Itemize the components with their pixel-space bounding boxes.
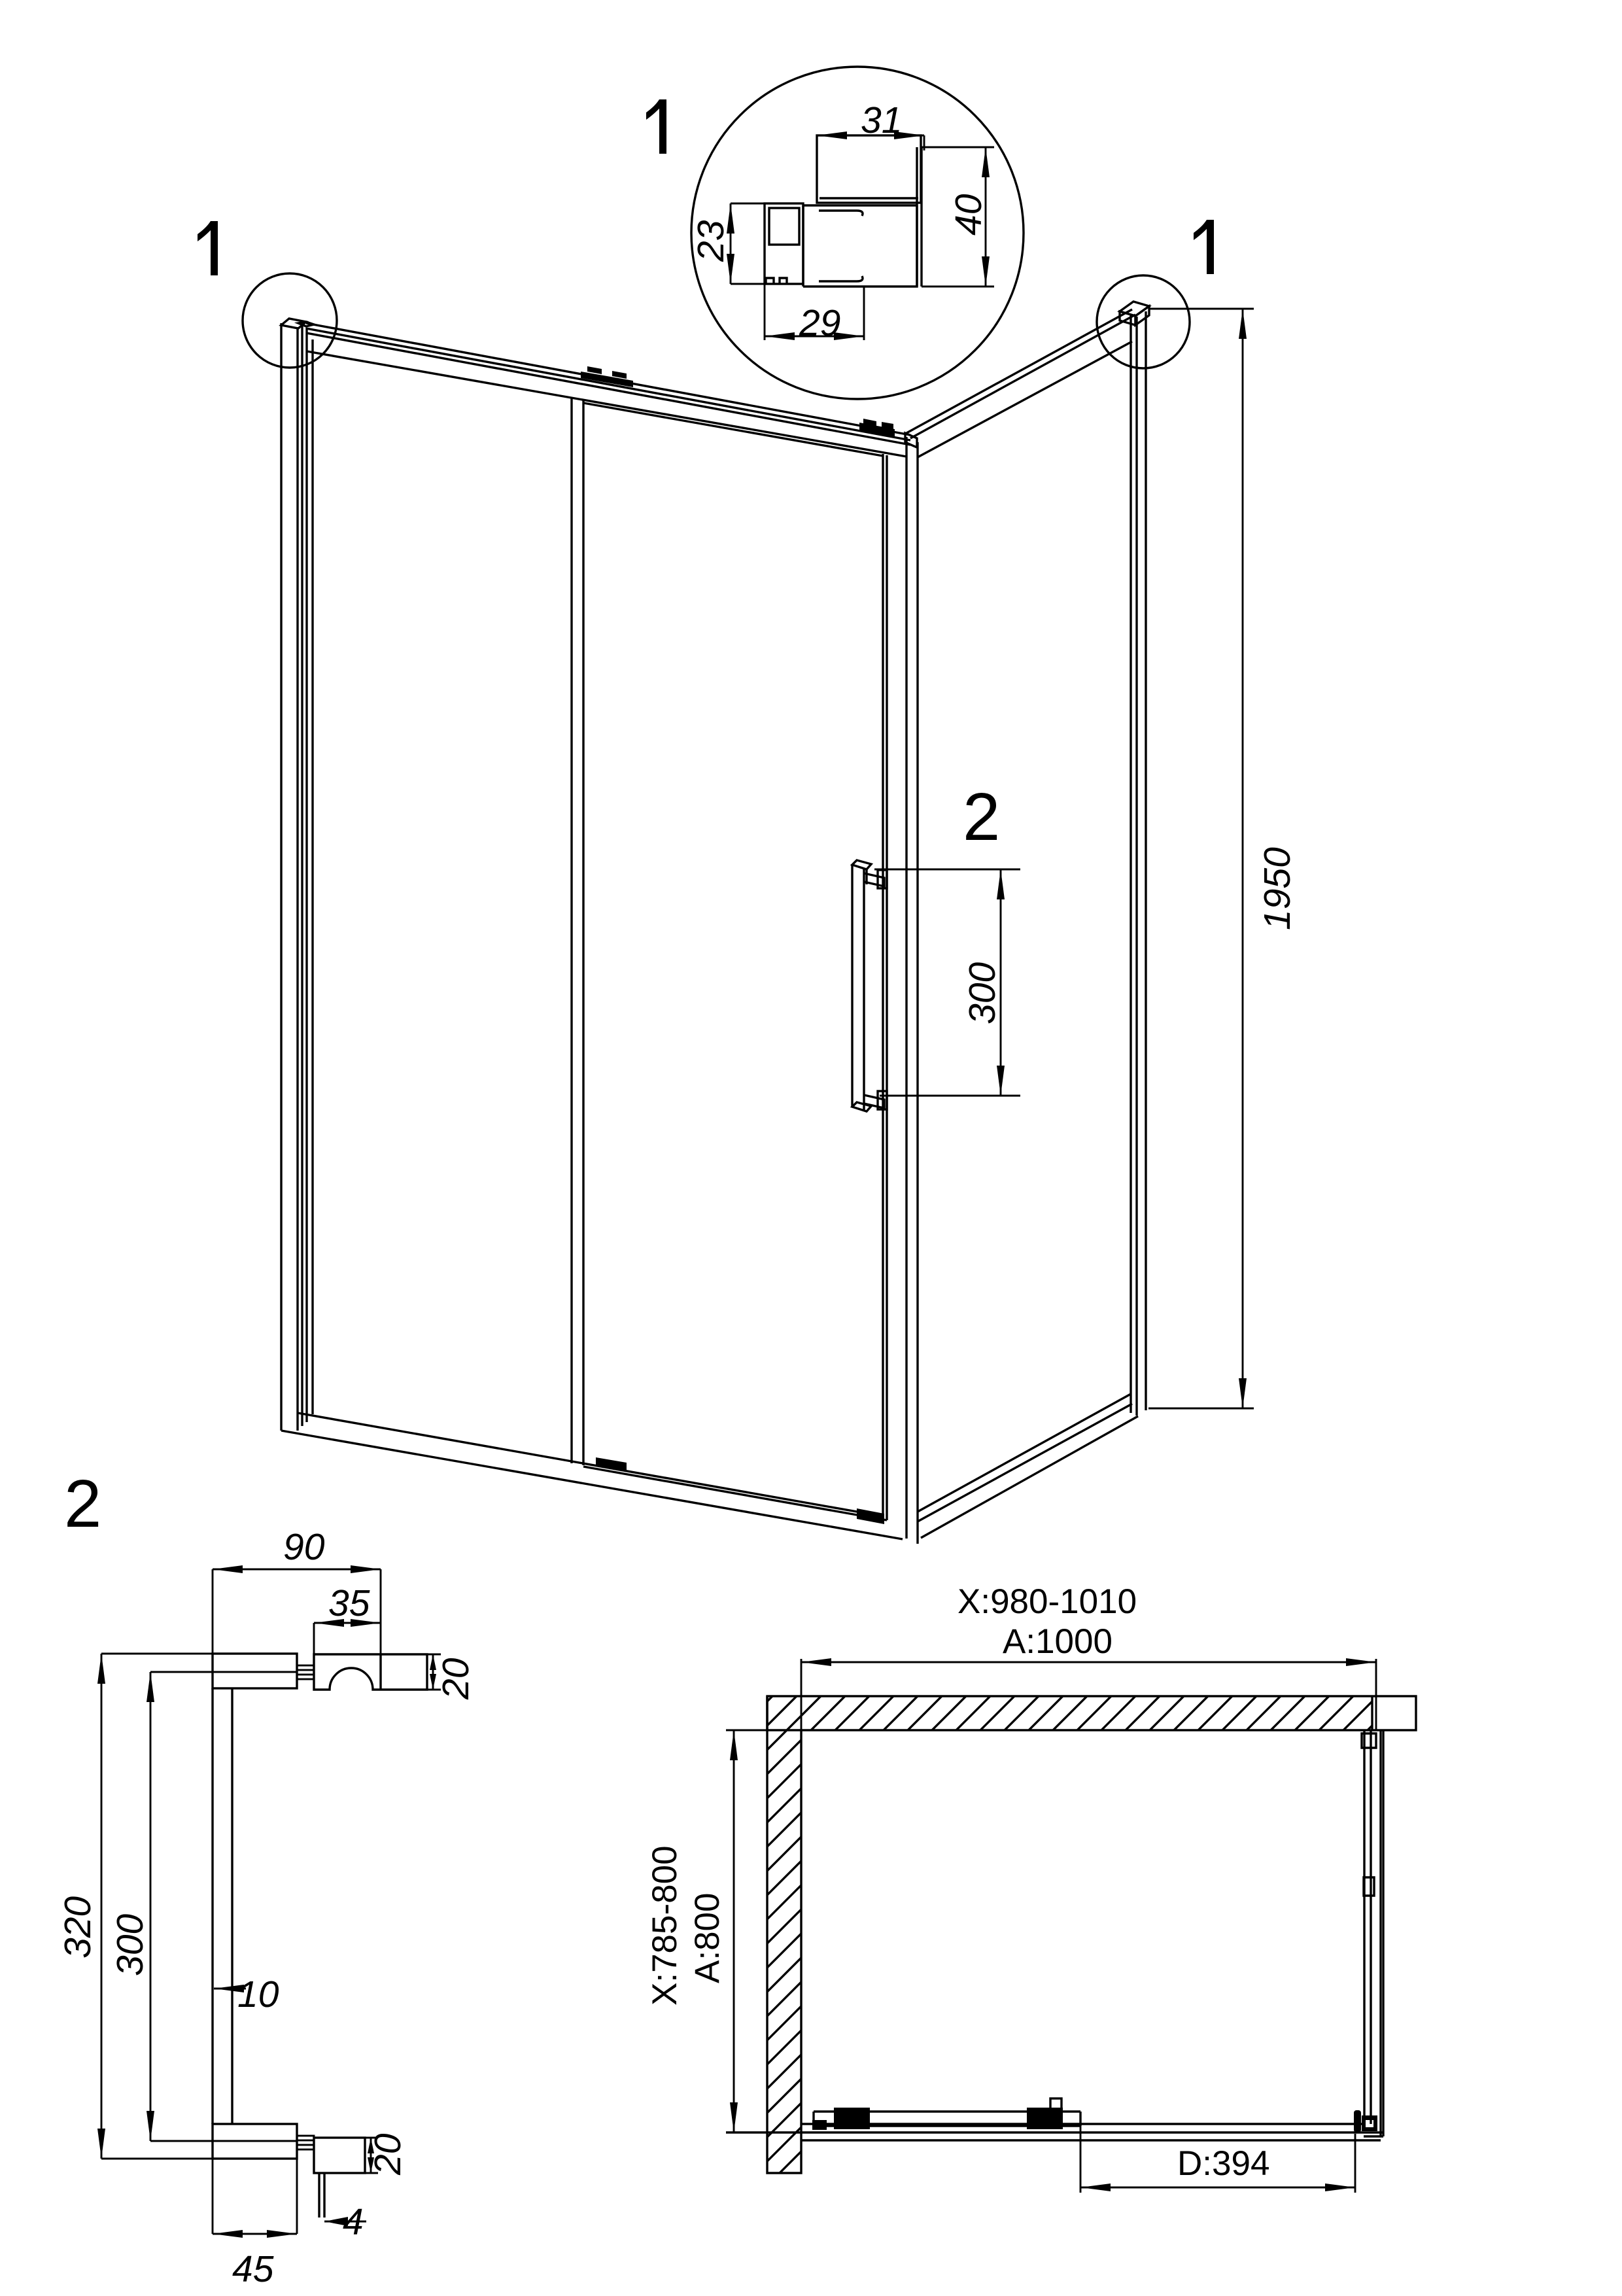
svg-text:35: 35 [328,1582,370,1624]
svg-text:X:785-800: X:785-800 [646,1845,684,2006]
svg-text:4: 4 [343,2201,364,2243]
svg-text:X:980-1010: X:980-1010 [958,1582,1137,1621]
svg-text:1950: 1950 [1256,847,1298,930]
svg-text:45: 45 [232,2248,274,2290]
svg-text:A:1000: A:1000 [1003,1622,1113,1661]
svg-text:320: 320 [57,1896,99,1958]
svg-text:23: 23 [690,220,732,262]
svg-text:A:800: A:800 [688,1892,727,1983]
svg-text:90: 90 [283,1526,325,1568]
svg-text:300: 300 [961,962,1003,1024]
svg-text:10: 10 [237,1974,279,2015]
svg-text:29: 29 [799,302,840,344]
svg-text:300: 300 [109,1914,151,1976]
svg-text:2: 2 [64,1466,101,1541]
svg-text:D:394: D:394 [1177,2144,1269,2183]
svg-text:40: 40 [948,194,990,235]
svg-text:20: 20 [367,2133,409,2176]
svg-text:20: 20 [435,1658,477,1700]
svg-text:2: 2 [963,779,1000,854]
